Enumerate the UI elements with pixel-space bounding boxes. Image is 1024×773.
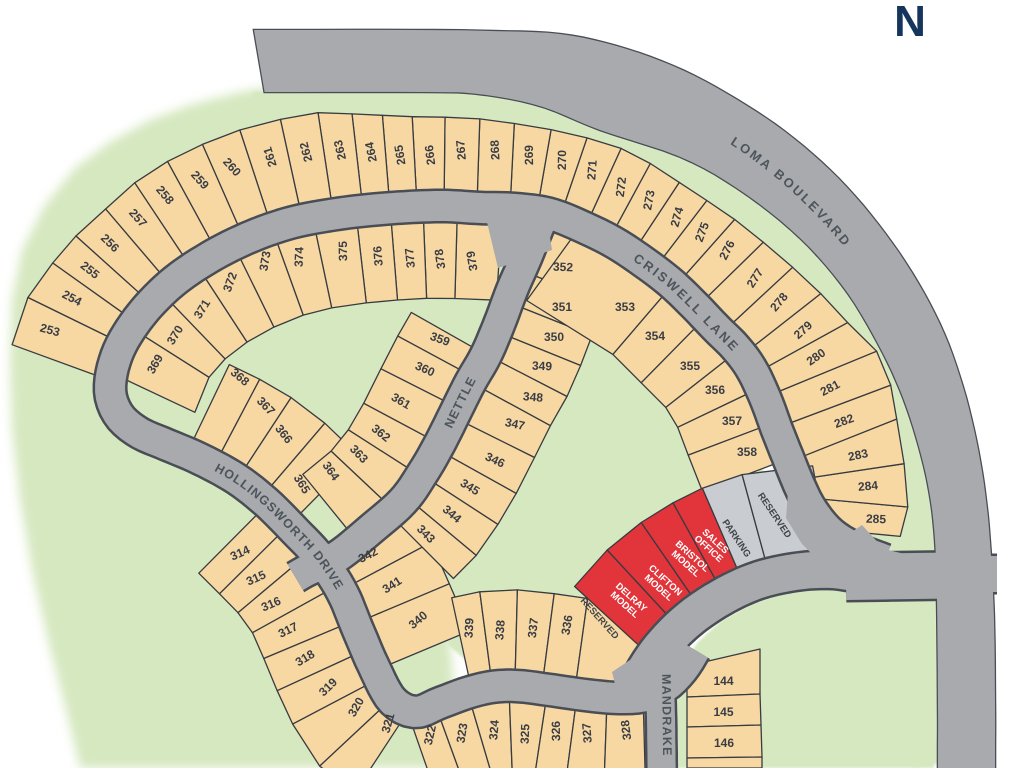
svg-text:284: 284 (857, 478, 878, 494)
svg-text:270: 270 (555, 150, 569, 171)
svg-text:326: 326 (549, 721, 563, 742)
svg-text:267: 267 (453, 139, 469, 160)
svg-text:355: 355 (680, 359, 700, 373)
svg-text:271: 271 (584, 159, 599, 180)
svg-text:328: 328 (618, 719, 634, 741)
svg-text:337: 337 (525, 617, 541, 639)
svg-text:324: 324 (486, 719, 502, 740)
svg-text:374: 374 (292, 246, 307, 267)
svg-text:376: 376 (370, 245, 385, 266)
svg-text:378: 378 (432, 248, 449, 270)
svg-text:146: 146 (714, 736, 734, 750)
svg-text:377: 377 (402, 247, 418, 269)
svg-text:338: 338 (492, 619, 508, 640)
svg-text:327: 327 (579, 722, 594, 743)
svg-text:356: 356 (705, 383, 725, 397)
svg-text:266: 266 (422, 144, 438, 166)
svg-text:358: 358 (737, 445, 757, 459)
svg-text:N: N (894, 0, 926, 46)
svg-text:357: 357 (722, 414, 742, 428)
svg-text:375: 375 (336, 241, 350, 262)
svg-text:144: 144 (713, 674, 733, 688)
svg-text:269: 269 (522, 145, 536, 166)
svg-text:268: 268 (487, 139, 502, 160)
svg-text:351: 351 (552, 300, 572, 314)
svg-text:349: 349 (532, 359, 553, 374)
svg-text:145: 145 (713, 705, 733, 719)
svg-text:353: 353 (615, 300, 635, 314)
svg-text:352: 352 (553, 260, 574, 275)
svg-text:348: 348 (522, 389, 543, 405)
svg-text:MANDRAKE: MANDRAKE (659, 674, 674, 757)
svg-text:354: 354 (645, 329, 665, 343)
svg-text:350: 350 (544, 330, 564, 344)
svg-text:325: 325 (518, 723, 533, 744)
svg-text:285: 285 (866, 512, 887, 527)
svg-text:272: 272 (613, 176, 629, 198)
svg-text:339: 339 (461, 617, 476, 638)
